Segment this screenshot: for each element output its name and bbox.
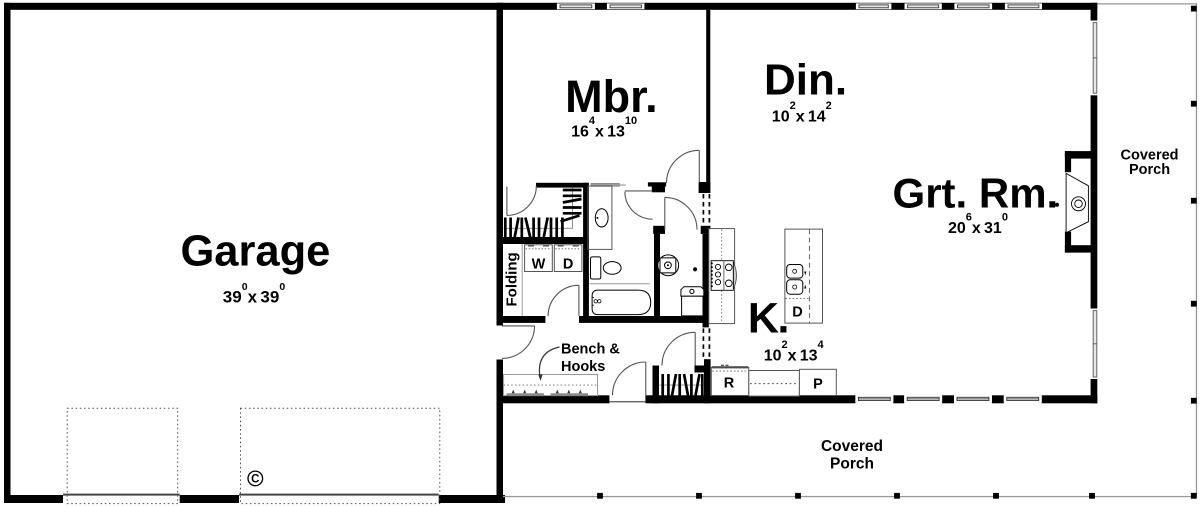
svg-text:R: R xyxy=(724,376,735,392)
svg-text:Folding: Folding xyxy=(504,252,521,306)
svg-text:Covered: Covered xyxy=(821,438,883,455)
svg-text:W: W xyxy=(532,256,546,272)
svg-text:Porch: Porch xyxy=(1129,162,1170,178)
svg-text:P: P xyxy=(813,377,823,393)
svg-text:Hooks: Hooks xyxy=(561,359,605,375)
svg-text:Porch: Porch xyxy=(830,455,874,472)
svg-text:Garage: Garage xyxy=(180,227,330,275)
svg-text:Grt. Rm.: Grt. Rm. xyxy=(893,170,1059,217)
svg-text:C: C xyxy=(251,474,259,486)
svg-text:K.: K. xyxy=(748,295,790,343)
svg-text:D: D xyxy=(563,256,573,272)
svg-text:Mbr.: Mbr. xyxy=(565,71,658,122)
svg-text:Din.: Din. xyxy=(764,56,847,105)
svg-text:Bench &: Bench & xyxy=(561,342,620,358)
svg-text:D: D xyxy=(792,304,802,320)
